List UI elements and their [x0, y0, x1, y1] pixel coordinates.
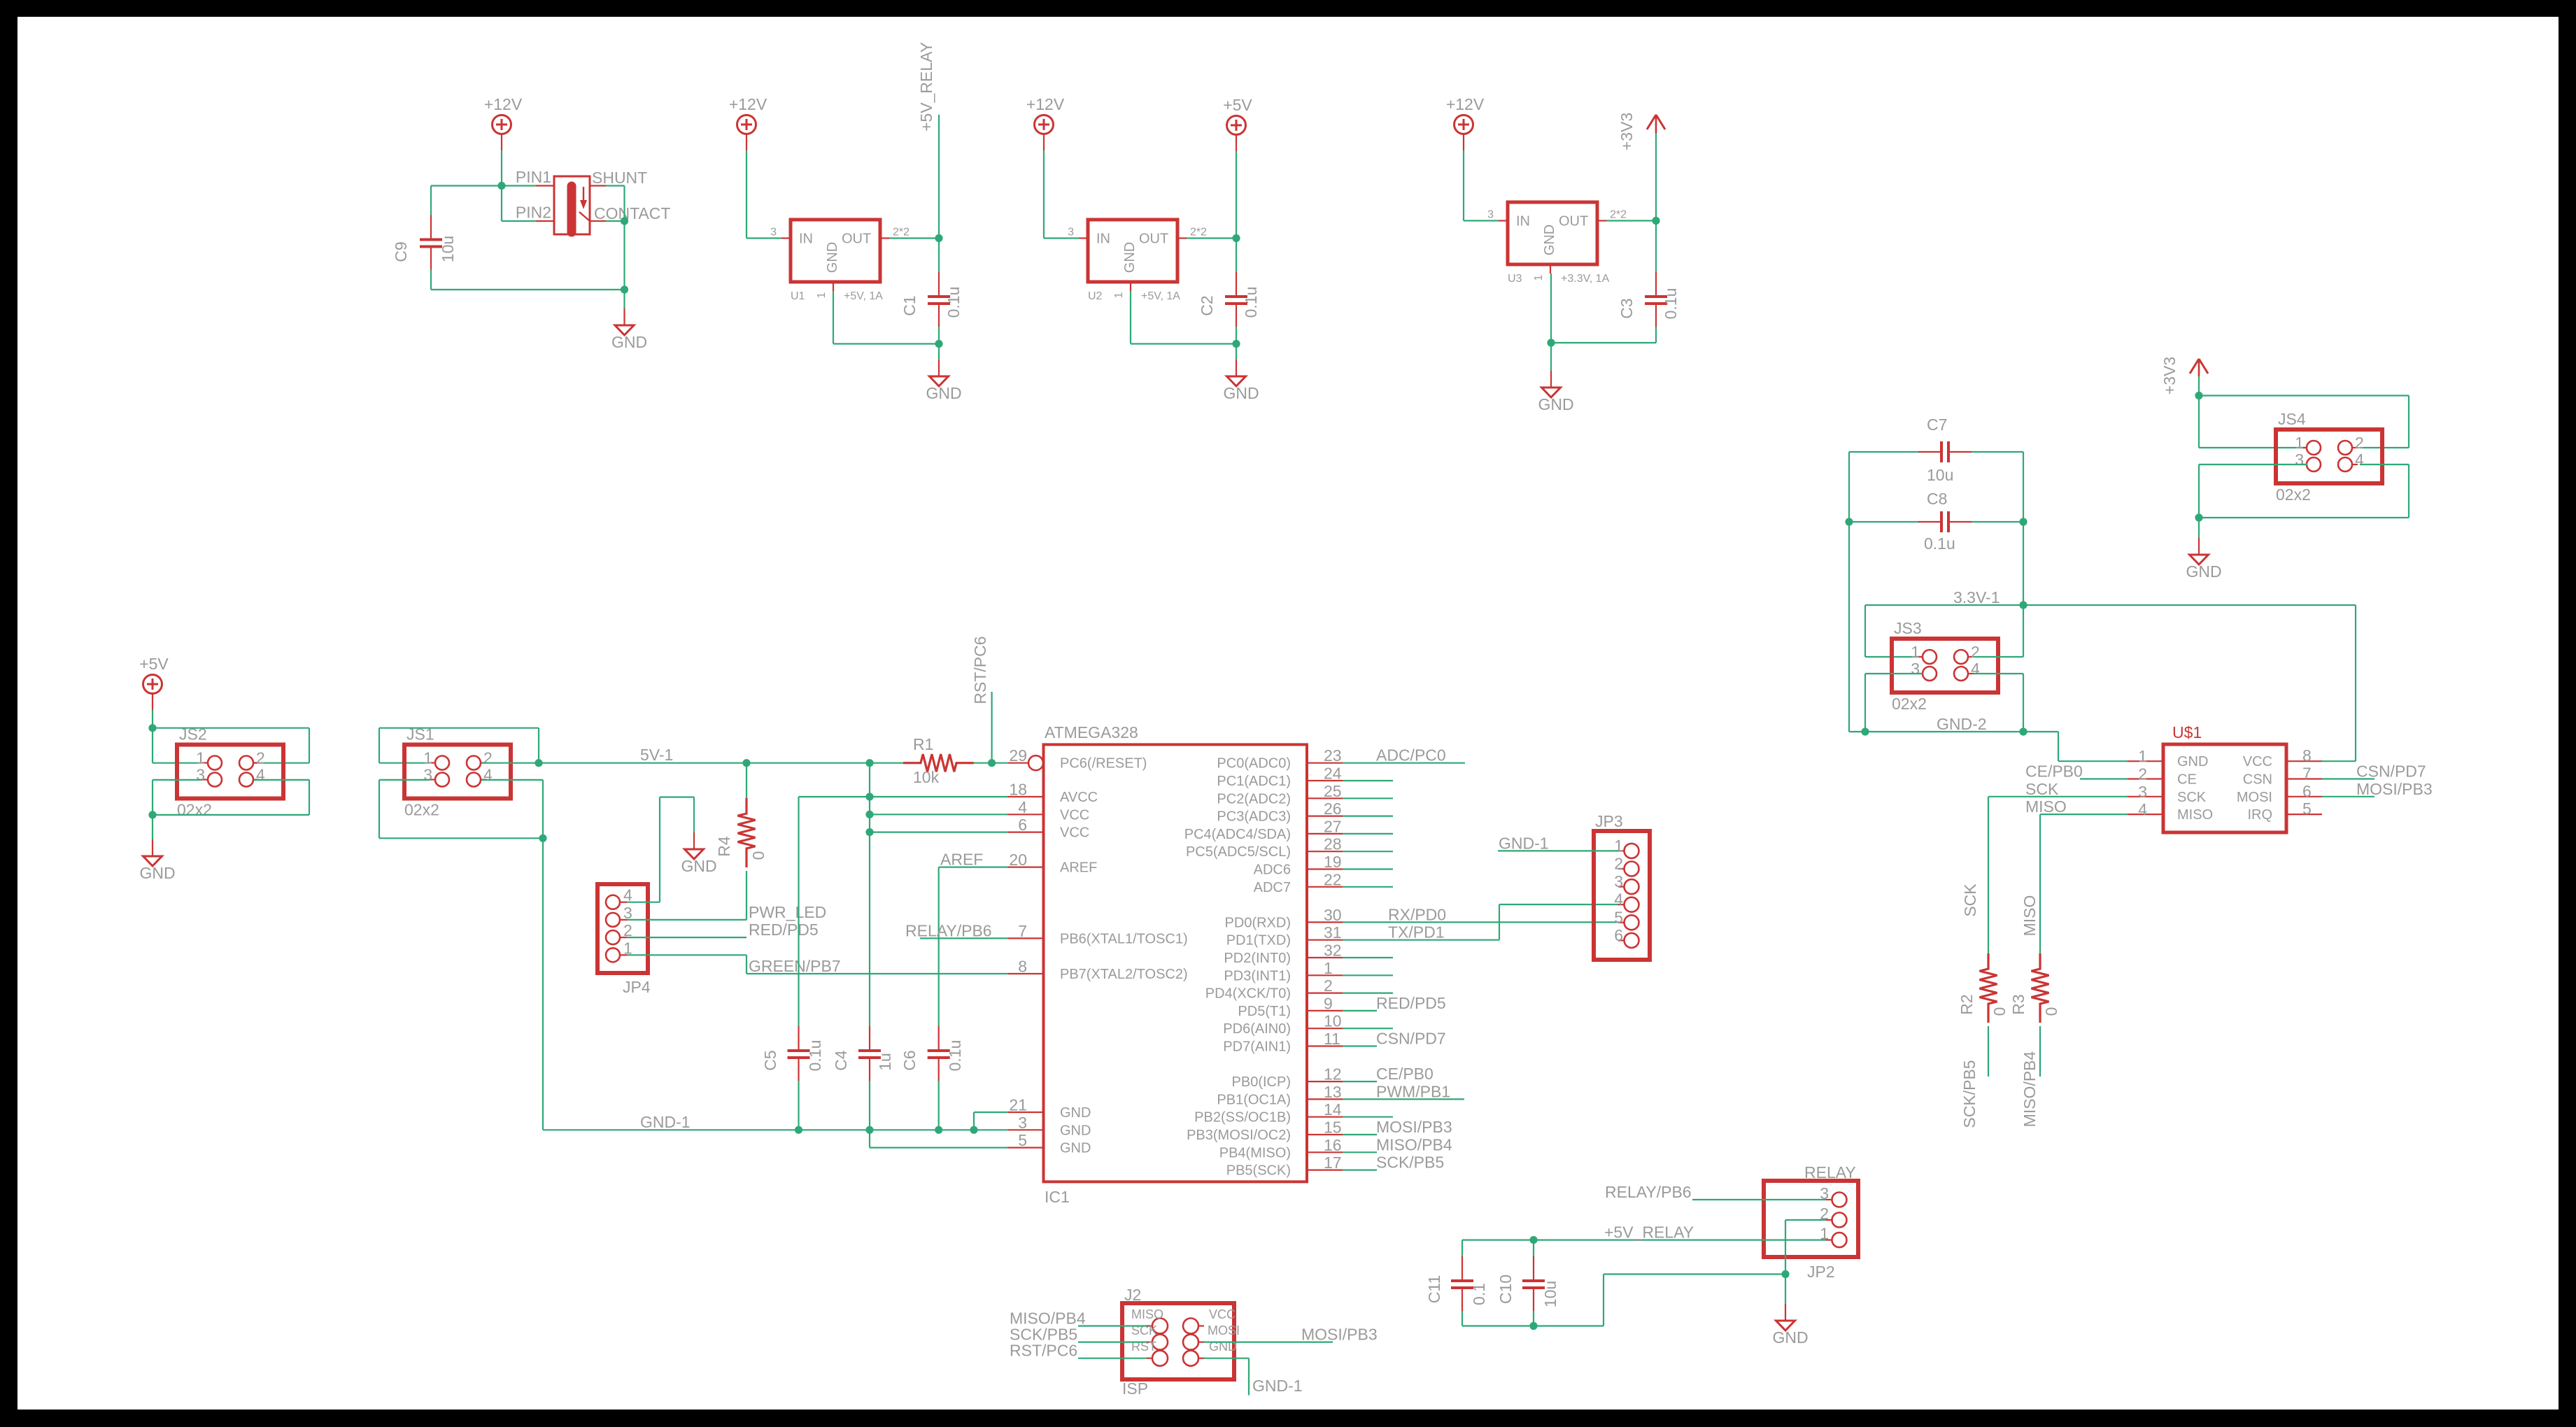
svg-text:1: 1: [2138, 747, 2147, 765]
svg-text:ATMEGA328: ATMEGA328: [1045, 723, 1138, 741]
svg-text:02x2: 02x2: [1892, 695, 1927, 713]
svg-text:2: 2: [1971, 643, 1980, 661]
svg-text:30: 30: [1324, 906, 1342, 924]
svg-text:C1: C1: [900, 295, 919, 315]
svg-text:MISO/PB4: MISO/PB4: [1010, 1309, 1086, 1328]
svg-text:C7: C7: [1927, 416, 1947, 434]
svg-text:31: 31: [1324, 923, 1342, 942]
svg-text:RED/PD5: RED/PD5: [1376, 994, 1446, 1012]
svg-text:CE: CE: [2177, 772, 2197, 788]
svg-text:18: 18: [1009, 781, 1027, 799]
svg-text:GND-1: GND-1: [640, 1113, 691, 1131]
svg-text:JP2: JP2: [1807, 1263, 1835, 1281]
svg-text:11: 11: [1324, 1030, 1340, 1048]
svg-text:10u: 10u: [439, 236, 457, 262]
svg-text:CSN/PD7: CSN/PD7: [2356, 762, 2426, 781]
svg-text:C8: C8: [1927, 490, 1947, 508]
svg-text:MOSI: MOSI: [2237, 790, 2272, 805]
svg-text:PIN1: PIN1: [516, 168, 551, 186]
svg-text:RX/PD0: RX/PD0: [1388, 905, 1446, 923]
svg-text:JS1: JS1: [406, 725, 434, 744]
svg-text:MOSI/PB3: MOSI/PB3: [2356, 780, 2433, 798]
svg-text:0: 0: [749, 851, 767, 860]
svg-text:+12V: +12V: [484, 95, 523, 113]
svg-text:MOSI: MOSI: [1208, 1323, 1240, 1337]
svg-text:4: 4: [256, 766, 265, 784]
svg-text:C9: C9: [392, 241, 410, 262]
svg-text:6: 6: [2302, 782, 2312, 800]
svg-text:+5V, 1A: +5V, 1A: [844, 290, 883, 302]
svg-text:ADC7: ADC7: [1254, 880, 1291, 895]
svg-text:2: 2: [1324, 977, 1333, 995]
svg-text:7: 7: [1018, 922, 1027, 940]
svg-text:3: 3: [1018, 1114, 1027, 1132]
svg-text:GND: GND: [611, 333, 647, 351]
svg-text:1: 1: [1614, 837, 1623, 855]
svg-text:02x2: 02x2: [177, 801, 212, 819]
svg-text:1u: 1u: [876, 1053, 894, 1071]
svg-text:C4: C4: [832, 1050, 850, 1071]
svg-text:4: 4: [2355, 450, 2364, 469]
svg-text:PD4(XCK/T0): PD4(XCK/T0): [1205, 986, 1291, 1002]
svg-text:0.1: 0.1: [1470, 1283, 1488, 1305]
svg-text:13: 13: [1324, 1083, 1342, 1101]
svg-text:PB0(ICP): PB0(ICP): [1232, 1074, 1291, 1090]
svg-text:+12V: +12V: [1026, 95, 1065, 113]
svg-text:0.1u: 0.1u: [1242, 287, 1260, 318]
svg-text:6: 6: [1018, 816, 1027, 834]
svg-text:4: 4: [2138, 800, 2147, 818]
svg-text:JP4: JP4: [623, 978, 651, 996]
svg-text:VCC: VCC: [1060, 807, 1089, 823]
svg-text:16: 16: [1324, 1136, 1342, 1154]
svg-text:PC3(ADC3): PC3(ADC3): [1217, 809, 1291, 825]
svg-text:IRQ: IRQ: [2247, 807, 2272, 823]
svg-text:24: 24: [1324, 765, 1342, 783]
svg-text:0: 0: [2042, 1007, 2060, 1016]
svg-text:GND: GND: [681, 857, 716, 875]
svg-text:1: 1: [1324, 959, 1333, 977]
svg-text:GND: GND: [1060, 1123, 1091, 1138]
svg-text:PB2(SS/OC1B): PB2(SS/OC1B): [1194, 1110, 1291, 1126]
svg-text:1: 1: [1533, 274, 1545, 281]
svg-text:PD2(INT0): PD2(INT0): [1224, 951, 1291, 966]
svg-text:AVCC: AVCC: [1060, 790, 1098, 805]
svg-text:IC1: IC1: [1045, 1188, 1070, 1206]
svg-text:25: 25: [1324, 782, 1342, 800]
svg-text:CSN/PD7: CSN/PD7: [1376, 1030, 1446, 1048]
svg-text:GND: GND: [1060, 1105, 1091, 1121]
svg-text:32: 32: [1324, 942, 1342, 960]
svg-text:CSN: CSN: [2243, 772, 2272, 788]
svg-text:GND: GND: [1542, 225, 1557, 255]
svg-text:C11: C11: [1425, 1275, 1443, 1304]
svg-text:0.1u: 0.1u: [1662, 288, 1680, 320]
svg-text:RST/PC6: RST/PC6: [1010, 1342, 1077, 1360]
svg-text:GND: GND: [1122, 242, 1138, 273]
svg-text:CONTACT: CONTACT: [594, 204, 670, 222]
svg-text:RELAY/PB6: RELAY/PB6: [1605, 1183, 1692, 1201]
svg-text:J2: J2: [1124, 1286, 1141, 1304]
svg-text:2: 2: [2355, 434, 2364, 452]
svg-text:OUT: OUT: [842, 232, 871, 247]
svg-text:3: 3: [196, 766, 205, 784]
svg-text:AREF: AREF: [940, 851, 983, 869]
svg-text:IN: IN: [1096, 232, 1110, 247]
svg-text:4: 4: [483, 766, 493, 784]
svg-text:ISP: ISP: [1122, 1379, 1148, 1398]
svg-text:GND: GND: [2186, 562, 2221, 581]
svg-text:MISO: MISO: [1131, 1307, 1163, 1321]
svg-text:R4: R4: [715, 836, 733, 857]
svg-text:MISO: MISO: [2021, 895, 2039, 937]
svg-text:3: 3: [770, 227, 777, 239]
svg-text:RED/PD5: RED/PD5: [749, 921, 819, 939]
svg-text:0.1u: 0.1u: [944, 287, 963, 318]
svg-text:PB3(MOSI/OC2): PB3(MOSI/OC2): [1187, 1128, 1291, 1143]
svg-text:PD5(T1): PD5(T1): [1238, 1004, 1291, 1019]
svg-text:3: 3: [423, 766, 432, 784]
svg-text:C6: C6: [900, 1050, 919, 1070]
svg-text:VCC: VCC: [1209, 1307, 1236, 1321]
svg-text:10: 10: [1324, 1012, 1342, 1030]
svg-text:2*2: 2*2: [1190, 227, 1207, 239]
svg-text:5: 5: [1614, 908, 1623, 926]
svg-text:SCK/PB5: SCK/PB5: [1376, 1153, 1444, 1172]
svg-text:2*2: 2*2: [1610, 209, 1627, 221]
svg-text:+5V: +5V: [139, 655, 169, 673]
svg-text:JP3: JP3: [1595, 812, 1623, 830]
svg-text:14: 14: [1324, 1100, 1342, 1119]
svg-text:GND-2: GND-2: [1937, 715, 1987, 733]
svg-text:3: 3: [1911, 660, 1920, 678]
svg-text:SCK/PB5: SCK/PB5: [1010, 1326, 1077, 1344]
svg-text:02x2: 02x2: [404, 801, 439, 819]
svg-text:R3: R3: [2009, 994, 2027, 1014]
svg-text:+3V3: +3V3: [1618, 113, 1636, 150]
svg-text:OUT: OUT: [1139, 232, 1168, 247]
svg-text:17: 17: [1324, 1153, 1342, 1172]
svg-text:26: 26: [1324, 800, 1342, 818]
svg-text:RST/PC6: RST/PC6: [971, 636, 989, 704]
svg-text:IN: IN: [799, 232, 813, 247]
svg-text:U$1: U$1: [2172, 723, 2202, 741]
svg-text:2: 2: [483, 749, 493, 767]
svg-text:3: 3: [1614, 872, 1623, 890]
svg-text:AREF: AREF: [1060, 860, 1097, 876]
svg-text:MOSI/PB3: MOSI/PB3: [1301, 1326, 1378, 1344]
svg-text:3: 3: [2295, 450, 2304, 469]
svg-text:19: 19: [1324, 853, 1342, 871]
svg-text:RELAY/PB6: RELAY/PB6: [905, 921, 992, 939]
svg-text:15: 15: [1324, 1119, 1342, 1137]
svg-text:PB1(OC1A): PB1(OC1A): [1217, 1092, 1291, 1107]
svg-text:GND: GND: [926, 384, 961, 402]
svg-text:5: 5: [1018, 1131, 1027, 1149]
svg-text:U2: U2: [1088, 290, 1103, 302]
svg-text:GND: GND: [1538, 395, 1573, 413]
svg-text:21: 21: [1009, 1096, 1027, 1114]
svg-text:1: 1: [196, 749, 205, 767]
svg-text:+3V3: +3V3: [2160, 357, 2179, 395]
svg-text:1: 1: [1113, 292, 1125, 298]
svg-text:5V-1: 5V-1: [640, 746, 673, 764]
svg-text:02x2: 02x2: [2276, 485, 2311, 504]
svg-text:+5V: +5V: [1223, 96, 1252, 114]
svg-text:27: 27: [1324, 817, 1342, 835]
svg-text:2: 2: [256, 749, 265, 767]
svg-text:10u: 10u: [1927, 466, 1953, 484]
svg-text:0.1u: 0.1u: [946, 1040, 964, 1072]
svg-text:JS4: JS4: [2278, 410, 2306, 428]
svg-text:3: 3: [1487, 209, 1494, 221]
svg-text:GND-1: GND-1: [1252, 1377, 1303, 1395]
svg-text:4: 4: [1971, 660, 1980, 678]
svg-text:PC4(ADC4/SDA): PC4(ADC4/SDA): [1184, 827, 1291, 842]
svg-text:JS2: JS2: [179, 725, 207, 744]
svg-text:3: 3: [1068, 227, 1074, 239]
svg-text:0: 0: [1990, 1007, 2009, 1016]
svg-text:SHUNT: SHUNT: [592, 169, 647, 187]
svg-text:GND: GND: [1772, 1328, 1808, 1347]
svg-text:1: 1: [2295, 434, 2304, 452]
svg-text:R2: R2: [1958, 994, 1976, 1014]
svg-text:MISO: MISO: [2025, 797, 2067, 816]
svg-text:4: 4: [1018, 798, 1027, 816]
svg-text:PB5(SCK): PB5(SCK): [1226, 1163, 1291, 1179]
svg-text:PD6(AIN0): PD6(AIN0): [1223, 1021, 1291, 1037]
svg-text:R1: R1: [913, 735, 933, 753]
svg-text:0.1u: 0.1u: [806, 1040, 824, 1072]
svg-text:PB6(XTAL1/TOSC1): PB6(XTAL1/TOSC1): [1060, 931, 1188, 946]
svg-text:OUT: OUT: [1559, 214, 1588, 229]
svg-text:RELAY: RELAY: [1804, 1163, 1856, 1181]
svg-text:C10: C10: [1496, 1275, 1515, 1304]
svg-text:PC1(ADC1): PC1(ADC1): [1217, 774, 1291, 789]
svg-text:SCK: SCK: [2177, 790, 2207, 805]
svg-text:23: 23: [1324, 746, 1342, 765]
svg-text:PD7(AIN1): PD7(AIN1): [1223, 1039, 1291, 1055]
svg-text:2: 2: [1614, 855, 1623, 873]
svg-text:4: 4: [1614, 890, 1623, 909]
svg-text:SCK/PB5: SCK/PB5: [1960, 1060, 1979, 1128]
svg-text:JS3: JS3: [1894, 619, 1922, 637]
svg-text:GND: GND: [1223, 384, 1259, 402]
svg-text:9: 9: [1324, 994, 1333, 1012]
svg-text:PWR_LED: PWR_LED: [749, 903, 826, 921]
svg-text:PD3(INT1): PD3(INT1): [1224, 968, 1291, 984]
svg-text:1: 1: [1911, 643, 1920, 661]
svg-text:+3.3V, 1A: +3.3V, 1A: [1561, 273, 1610, 285]
svg-text:TX/PD1: TX/PD1: [1388, 923, 1445, 942]
svg-text:VCC: VCC: [1060, 825, 1089, 841]
svg-text:GREEN/PB7: GREEN/PB7: [749, 957, 841, 975]
svg-text:+5V, 1A: +5V, 1A: [1141, 290, 1180, 302]
svg-text:0.1u: 0.1u: [1924, 534, 1955, 553]
svg-text:12: 12: [1324, 1065, 1342, 1084]
svg-text:1: 1: [816, 292, 828, 298]
svg-text:8: 8: [2302, 746, 2312, 765]
svg-text:28: 28: [1324, 835, 1342, 853]
svg-text:+5V_RELAY: +5V_RELAY: [1604, 1223, 1694, 1242]
svg-text:GND-1: GND-1: [1499, 834, 1549, 852]
svg-text:PWM/PB1: PWM/PB1: [1376, 1082, 1450, 1100]
svg-text:C2: C2: [1198, 295, 1216, 315]
svg-text:7: 7: [2302, 765, 2312, 783]
svg-text:5: 5: [2302, 800, 2312, 818]
svg-text:PC6(/RESET): PC6(/RESET): [1060, 756, 1147, 772]
svg-text:C5: C5: [761, 1050, 779, 1070]
svg-text:+5V_RELAY: +5V_RELAY: [917, 42, 935, 132]
svg-text:+12V: +12V: [729, 95, 767, 113]
svg-text:1: 1: [423, 749, 432, 767]
svg-text:PD0(RXD): PD0(RXD): [1225, 915, 1291, 930]
svg-text:8: 8: [1018, 958, 1027, 976]
svg-text:3: 3: [2138, 783, 2147, 801]
svg-text:U1: U1: [791, 290, 805, 302]
svg-text:SCK: SCK: [1961, 883, 1979, 917]
svg-text:VCC: VCC: [2243, 754, 2272, 769]
svg-text:10k: 10k: [913, 768, 940, 786]
svg-text:PC2(ADC2): PC2(ADC2): [1217, 791, 1291, 807]
svg-text:MISO/PB4: MISO/PB4: [1376, 1135, 1452, 1153]
svg-text:22: 22: [1324, 870, 1342, 888]
svg-text:PB4(MISO): PB4(MISO): [1219, 1145, 1291, 1160]
svg-text:+12V: +12V: [1446, 95, 1485, 113]
svg-text:SCK: SCK: [2025, 780, 2059, 798]
svg-text:PC0(ADC0): PC0(ADC0): [1217, 756, 1291, 772]
svg-text:GND: GND: [1060, 1141, 1091, 1156]
svg-text:IN: IN: [1516, 214, 1530, 229]
svg-text:6: 6: [1614, 926, 1623, 944]
svg-text:2*2: 2*2: [893, 227, 910, 239]
svg-text:ADC/PC0: ADC/PC0: [1376, 746, 1446, 765]
svg-text:PIN2: PIN2: [516, 204, 551, 222]
svg-text:U3: U3: [1508, 273, 1522, 285]
svg-text:GND: GND: [2177, 754, 2208, 769]
svg-text:GND: GND: [139, 864, 175, 882]
svg-text:20: 20: [1009, 851, 1027, 869]
svg-text:MISO/PB4: MISO/PB4: [2021, 1051, 2039, 1127]
svg-text:GND: GND: [825, 242, 840, 273]
svg-text:CE/PB0: CE/PB0: [1376, 1065, 1434, 1083]
svg-text:C3: C3: [1618, 298, 1636, 318]
svg-text:MISO: MISO: [2177, 807, 2213, 823]
svg-text:PB7(XTAL2/TOSC2): PB7(XTAL2/TOSC2): [1060, 967, 1188, 982]
svg-text:3.3V-1: 3.3V-1: [1953, 588, 2000, 606]
svg-text:29: 29: [1009, 746, 1027, 765]
svg-text:10u: 10u: [1541, 1281, 1559, 1307]
svg-text:PD1(TXD): PD1(TXD): [1226, 933, 1291, 949]
svg-text:ADC6: ADC6: [1254, 862, 1291, 878]
svg-text:CE/PB0: CE/PB0: [2025, 762, 2083, 781]
svg-text:PC5(ADC5/SCL): PC5(ADC5/SCL): [1186, 844, 1291, 860]
svg-text:2: 2: [2138, 765, 2147, 783]
svg-text:MOSI/PB3: MOSI/PB3: [1376, 1118, 1452, 1136]
